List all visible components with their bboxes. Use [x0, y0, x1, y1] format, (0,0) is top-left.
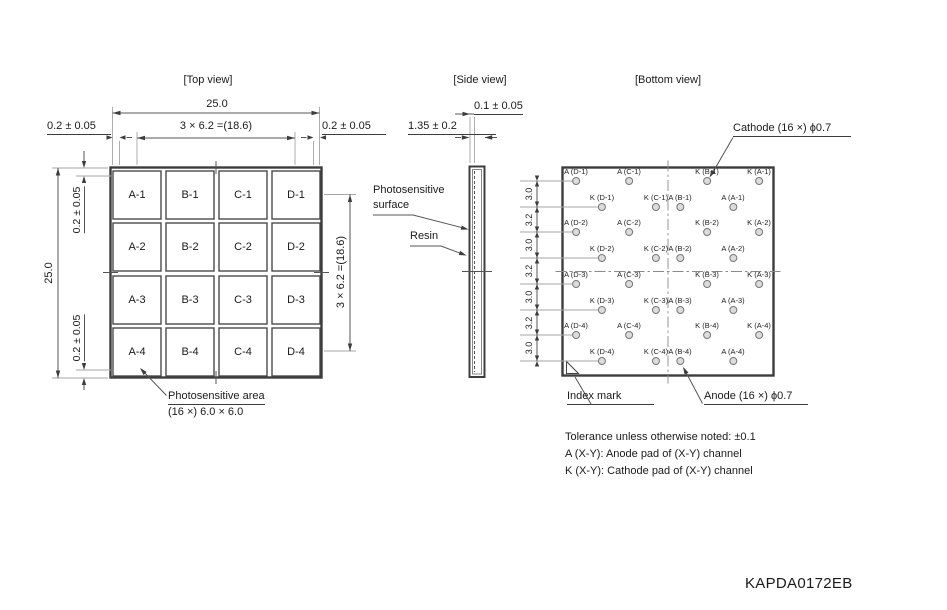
pad: K (D-3)	[590, 296, 614, 314]
pad-circle	[755, 331, 763, 339]
pad: K (D-2)	[590, 244, 614, 262]
pad-label: K (D-1)	[590, 193, 614, 202]
pad-circle	[703, 280, 711, 288]
pad-label: A (C-3)	[617, 270, 641, 279]
dim-pitch-vertical: 3 × 6.2 =(18.6)	[335, 236, 347, 308]
cell-label: B-1	[181, 189, 198, 201]
pad: A (B-3)	[668, 296, 691, 314]
pad-circle	[598, 254, 606, 262]
dim-pitch-horizontal: 3 × 6.2 =(18.6)	[180, 120, 252, 133]
pad-label: A (D-2)	[564, 218, 588, 227]
pitch-label: 3.2	[524, 316, 534, 329]
dim-surface-thickness: 0.1 ± 0.05	[474, 100, 523, 115]
pitch-label: 3.2	[524, 265, 534, 278]
cell-label: C-4	[234, 346, 252, 358]
pad-label: A (A-4)	[721, 347, 744, 356]
pad-label: A (D-4)	[564, 321, 588, 330]
pad: K (D-4)	[590, 347, 614, 365]
cell-label: D-4	[287, 346, 305, 358]
cell-label: C-1	[234, 189, 252, 201]
pad: A (A-3)	[721, 296, 744, 314]
pad-circle	[652, 357, 660, 365]
pad-label: K (C-2)	[644, 244, 668, 253]
note-anode: A (X-Y): Anode pad of (X-Y) channel	[565, 448, 742, 461]
side-view-title: [Side view]	[453, 74, 506, 87]
pad: A (A-2)	[721, 244, 744, 262]
pad-circle	[598, 203, 606, 211]
pad: K (B-1)	[695, 167, 719, 185]
pad: A (D-1)	[564, 167, 588, 185]
anode-label: Anode (16 ×) ϕ0.7	[704, 390, 808, 405]
pad: A (A-1)	[721, 193, 744, 211]
pad-label: K (D-3)	[590, 296, 614, 305]
cell-label: D-3	[287, 294, 305, 306]
pad-label: K (B-2)	[695, 218, 719, 227]
pad-label: A (B-2)	[668, 244, 691, 253]
cell-label: D-1	[287, 189, 305, 201]
pitch-label: 3.0	[524, 291, 534, 304]
area-note-line2: (16 ×) 6.0 × 6.0	[168, 406, 243, 419]
pad-circle	[625, 331, 633, 339]
note-tolerance: Tolerance unless otherwise noted: ±0.1	[565, 431, 756, 444]
cell-label: C-3	[234, 294, 252, 306]
pad: A (B-4)	[668, 347, 691, 365]
pad-label: A (D-1)	[564, 167, 588, 176]
index-mark-label: Index mark	[567, 390, 654, 405]
pad-circle	[652, 203, 660, 211]
pad-label: A (D-3)	[564, 270, 588, 279]
pad: K (C-2)	[644, 244, 668, 262]
pad-circle	[572, 177, 580, 185]
technical-drawing-page: [Top view] [Side view] [Bottom view] 25.…	[0, 0, 947, 610]
pad: A (C-3)	[617, 270, 641, 288]
pad-circle	[625, 228, 633, 236]
pitch-label: 3.0	[524, 188, 534, 201]
dim-margin-right: 0.2 ± 0.05	[322, 120, 386, 135]
pad: K (C-3)	[644, 296, 668, 314]
pad-circle	[652, 254, 660, 262]
pad: A (B-2)	[668, 244, 691, 262]
pad-label: K (B-4)	[695, 321, 719, 330]
pad-circle	[652, 306, 660, 314]
cell-label: A-3	[128, 294, 145, 306]
cell-label: B-2	[181, 241, 198, 253]
pad-label: A (A-3)	[721, 296, 744, 305]
pad-circle	[703, 331, 711, 339]
pad-circle	[598, 306, 606, 314]
pad: K (B-4)	[695, 321, 719, 339]
cathode-label: Cathode (16 ×) ϕ0.7	[733, 122, 851, 137]
area-note-line1: Photosensitive area	[168, 390, 265, 405]
pad-circle	[676, 203, 684, 211]
pad-circle	[676, 306, 684, 314]
pad-circle	[676, 357, 684, 365]
pad-label: A (B-1)	[668, 193, 691, 202]
side-view-outline	[462, 167, 492, 378]
pad-circle	[625, 177, 633, 185]
cell-label: A-2	[128, 241, 145, 253]
pad-label: A (A-2)	[721, 244, 744, 253]
pad: A (D-3)	[564, 270, 588, 288]
pad-circle	[572, 280, 580, 288]
pad-label: A (B-3)	[668, 296, 691, 305]
pitch-label: 3.2	[524, 213, 534, 226]
pad-label: K (A-3)	[747, 270, 771, 279]
pad-circle	[572, 228, 580, 236]
resin-label: Resin	[410, 230, 438, 243]
pad: K (C-1)	[644, 193, 668, 211]
pad: K (A-3)	[747, 270, 771, 288]
pad: A (C-4)	[617, 321, 641, 339]
pad: A (B-1)	[668, 193, 691, 211]
pad: K (B-3)	[695, 270, 719, 288]
cell-label: A-1	[128, 189, 145, 201]
pad-circle	[676, 254, 684, 262]
note-cathode: K (X-Y): Cathode pad of (X-Y) channel	[565, 465, 753, 478]
pad: A (D-4)	[564, 321, 588, 339]
pitch-label: 3.0	[524, 239, 534, 252]
pad-circle	[729, 254, 737, 262]
cell-label: D-2	[287, 241, 305, 253]
pad-circle	[729, 203, 737, 211]
pad: K (D-1)	[590, 193, 614, 211]
pad: K (A-2)	[747, 218, 771, 236]
pad-circle	[755, 280, 763, 288]
cell-label: C-2	[234, 241, 252, 253]
dim-margin-bottom: 0.2 ± 0.05	[71, 315, 85, 362]
pad-label: K (B-3)	[695, 270, 719, 279]
pad-label: K (A-4)	[747, 321, 771, 330]
dim-margin-top: 0.2 ± 0.05	[71, 187, 85, 234]
pad-label: K (B-1)	[695, 167, 719, 176]
pad-circle	[703, 177, 711, 185]
pad-label: A (C-4)	[617, 321, 641, 330]
surface-label-line1: Photosensitive	[373, 184, 445, 197]
pad-label: A (C-2)	[617, 218, 641, 227]
pad-circle	[625, 280, 633, 288]
pad-circle	[729, 357, 737, 365]
top-view-title: [Top view]	[184, 74, 233, 87]
dim-width: 25.0	[206, 98, 227, 111]
cell-label: B-4	[181, 346, 198, 358]
document-number: KAPDA0172EB	[745, 575, 853, 592]
surface-label-line2: surface	[373, 199, 409, 212]
pad-circle	[598, 357, 606, 365]
dim-height: 25.0	[43, 262, 55, 283]
pad: K (C-4)	[644, 347, 668, 365]
pad: A (C-1)	[617, 167, 641, 185]
pad: A (C-2)	[617, 218, 641, 236]
pad-label: A (B-4)	[668, 347, 691, 356]
dim-thickness: 1.35 ± 0.2	[408, 120, 496, 135]
pad-label: K (A-1)	[747, 167, 771, 176]
pad-circle	[755, 177, 763, 185]
pad-label: K (D-4)	[590, 347, 614, 356]
pad-circle	[755, 228, 763, 236]
pad-label: K (D-2)	[590, 244, 614, 253]
pad-circle	[729, 306, 737, 314]
pad: K (A-1)	[747, 167, 771, 185]
pad: K (B-2)	[695, 218, 719, 236]
dim-margin-left: 0.2 ± 0.05	[47, 120, 111, 135]
pad: A (A-4)	[721, 347, 744, 365]
pitch-label: 3.0	[524, 342, 534, 355]
pad-circle	[703, 228, 711, 236]
cell-label: B-3	[181, 294, 198, 306]
pad-label: A (A-1)	[721, 193, 744, 202]
pad: K (A-4)	[747, 321, 771, 339]
pad-label: K (C-1)	[644, 193, 668, 202]
pad-label: K (A-2)	[747, 218, 771, 227]
pad: A (D-2)	[564, 218, 588, 236]
pad-circle	[572, 331, 580, 339]
pad-label: K (C-4)	[644, 347, 668, 356]
pad-label: K (C-3)	[644, 296, 668, 305]
pad-label: A (C-1)	[617, 167, 641, 176]
cell-label: A-4	[128, 346, 145, 358]
bottom-view-title: [Bottom view]	[635, 74, 701, 87]
